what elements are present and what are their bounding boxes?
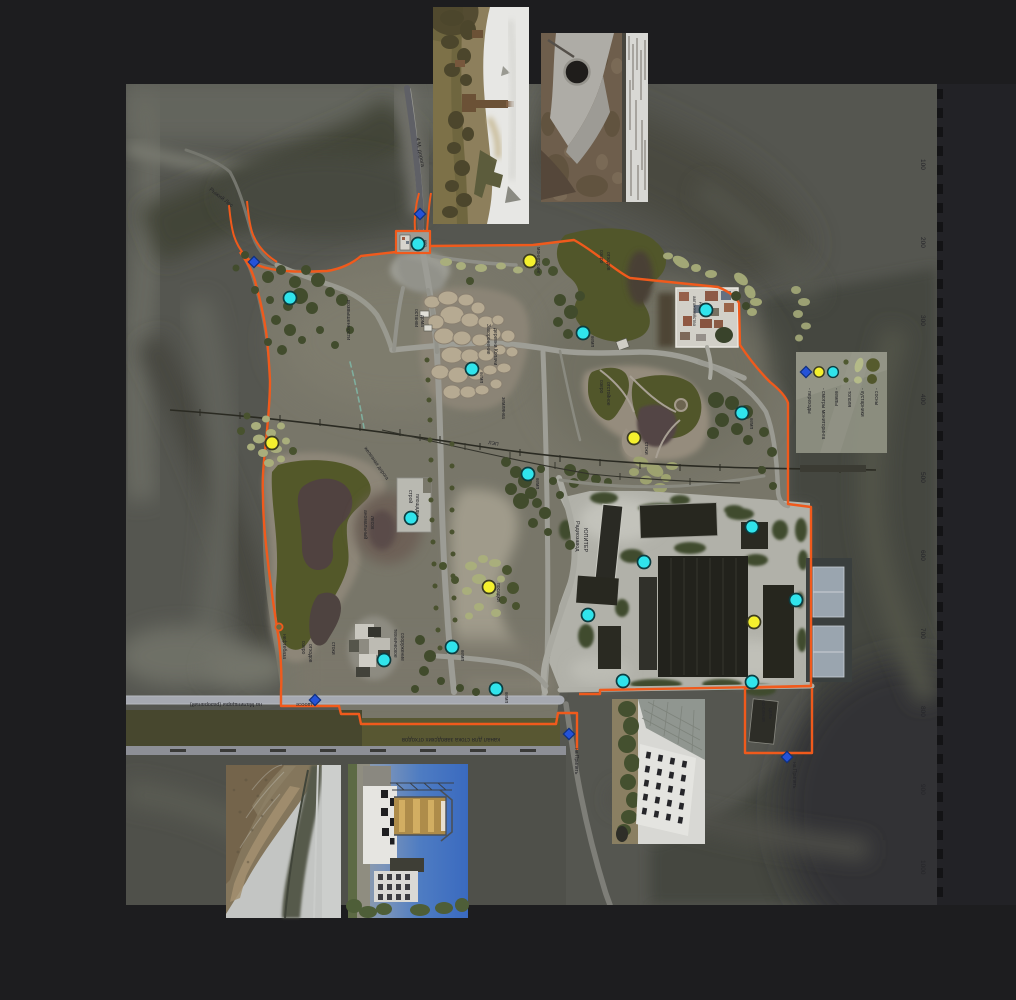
svg-text:400: 400 xyxy=(919,394,926,405)
svg-text:200: 200 xyxy=(919,237,926,248)
svg-text:нефтебаза: нефтебаза xyxy=(281,634,287,659)
svg-text:1000: 1000 xyxy=(919,860,926,875)
svg-text:кемп: кемп xyxy=(748,418,754,429)
svg-text:Радиозавод: Радиозавод xyxy=(574,521,580,552)
svg-text:сооружение: сооружение xyxy=(399,633,405,661)
svg-text:на Малинщары (разораный): на Малинщары (разораный) xyxy=(190,701,262,708)
svg-text:строй: строй xyxy=(407,490,414,503)
svg-text:ЮПИТЕР: ЮПИТЕР xyxy=(582,528,588,552)
svg-text:кемп: кемп xyxy=(589,336,595,347)
svg-text:лесок: лесок xyxy=(369,516,375,530)
svg-text:- тополя: - тополя xyxy=(846,388,852,407)
svg-text:озеро: озеро xyxy=(598,380,604,394)
svg-text:800: 800 xyxy=(919,706,926,717)
svg-text:100: 100 xyxy=(919,159,926,170)
svg-text:Захоронение: Захоронение xyxy=(485,324,491,355)
svg-text:цель: цель xyxy=(767,708,773,719)
svg-text:отстойное: отстойное xyxy=(605,382,612,406)
svg-text:отходов: отходов xyxy=(605,252,611,271)
svg-text:на Припять: на Припять xyxy=(791,762,797,789)
svg-text:шоссе: шоссе xyxy=(296,701,312,707)
svg-text:кемп: кемп xyxy=(459,650,465,661)
svg-text:900: 900 xyxy=(919,784,926,795)
svg-text:землянка: землянка xyxy=(500,397,506,419)
svg-text:- кустарники: - кустарники xyxy=(859,388,865,417)
svg-text:озеро: озеро xyxy=(598,250,604,264)
svg-text:останки: останки xyxy=(413,309,419,327)
svg-text:- смотры мониторинга: - смотры мониторинга xyxy=(820,388,826,440)
svg-text:канал для стока заводских отхо: канал для стока заводских отходов xyxy=(402,736,500,742)
svg-text:700: 700 xyxy=(919,628,926,639)
svg-text:аномальный: аномальный xyxy=(362,510,369,539)
svg-text:стоки: стоки xyxy=(643,442,649,455)
svg-text:дома: дома xyxy=(419,315,425,327)
svg-text:600: 600 xyxy=(919,550,926,561)
svg-text:- переходы: - переходы xyxy=(806,388,812,414)
svg-text:техническое: техническое xyxy=(392,629,398,658)
svg-text:деревни Копачи: деревни Копачи xyxy=(492,328,498,366)
svg-text:стоки: стоки xyxy=(330,642,336,655)
svg-text:кемп: кемп xyxy=(478,372,484,383)
svg-text:основная: основная xyxy=(760,700,766,722)
svg-text:озеро: озеро xyxy=(300,641,306,655)
svg-text:кемп: кемп xyxy=(503,692,509,703)
svg-text:отходов: отходов xyxy=(307,644,313,663)
svg-text:кемп: кемп xyxy=(534,478,540,489)
svg-text:- кемпы: - кемпы xyxy=(833,388,839,406)
svg-text:300: 300 xyxy=(919,315,926,326)
svg-text:автохозяйство: автохозяйство xyxy=(692,296,698,327)
svg-text:на Припять: на Припять xyxy=(573,748,579,775)
svg-text:возвышенности: возвышенности xyxy=(345,300,351,340)
svg-text:- сосны: - сосны xyxy=(873,388,879,406)
svg-text:500: 500 xyxy=(919,472,926,483)
